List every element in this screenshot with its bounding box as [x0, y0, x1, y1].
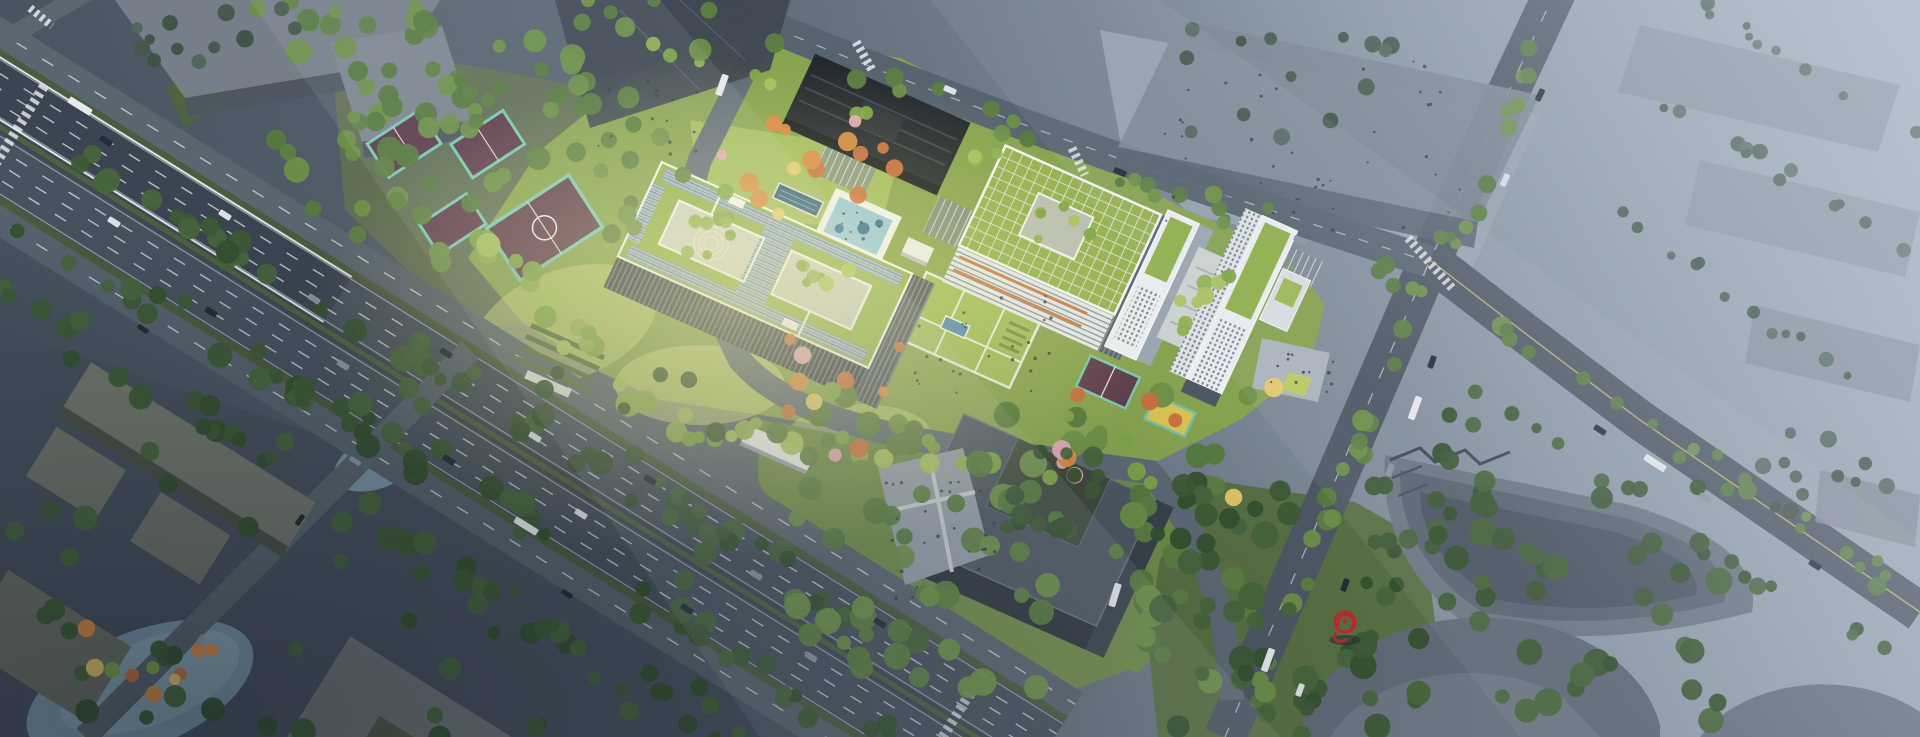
aerial-render-viewport: { "meta": { "title": "Aerial architectur…: [0, 0, 1920, 737]
corner-vignette: [0, 0, 1920, 737]
aerial-masterplan-rendering: [0, 0, 1920, 737]
